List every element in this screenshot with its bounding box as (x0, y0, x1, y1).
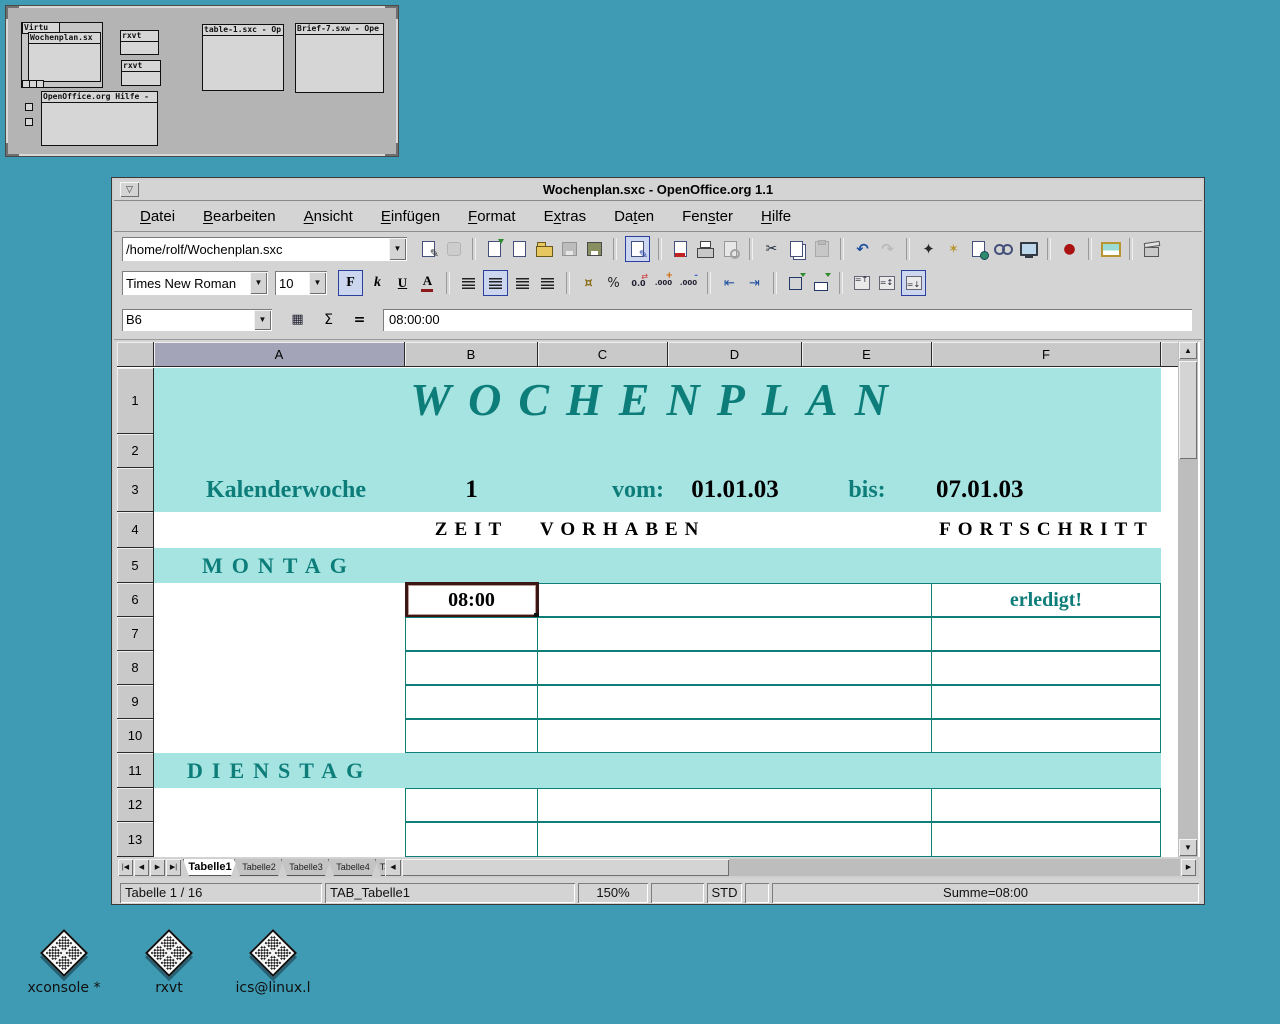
prev-sheet-icon[interactable]: ◀ (134, 859, 149, 876)
dienstag-band[interactable]: DIENSTAG (154, 753, 1161, 788)
kalenderwoche-label: Kalenderwoche (206, 468, 366, 512)
redo-icon[interactable] (876, 237, 899, 261)
row-header-4[interactable]: 4 (117, 512, 154, 548)
magic-wand-icon[interactable] (942, 237, 965, 261)
zeit-cell-row12[interactable] (405, 788, 538, 822)
cut-icon[interactable] (760, 237, 783, 261)
toolbar-separator (472, 238, 476, 260)
modified-flag[interactable] (745, 883, 769, 903)
row-header-9[interactable]: 9 (117, 685, 154, 719)
menu-einfgen[interactable]: Einfügen (367, 206, 454, 227)
copy-icon[interactable] (785, 237, 808, 261)
tab-scroll-left-icon[interactable]: ◀ (385, 859, 401, 876)
zoom-level[interactable]: 150% (578, 883, 648, 903)
status-bar: Tabelle 1 / 16TAB_Tabelle1150%STDSumme=0… (117, 880, 1199, 904)
selection-mode[interactable]: STD (707, 883, 742, 903)
edit-file-icon[interactable] (626, 237, 649, 261)
row-header-7[interactable]: 7 (117, 617, 154, 651)
toolbar-separator (839, 272, 843, 294)
menu-bearbeiten[interactable]: Bearbeiten (189, 206, 290, 227)
save-document-icon[interactable] (558, 237, 581, 261)
toolbar-separator (446, 272, 450, 294)
valign-center-icon[interactable] (875, 271, 898, 295)
fortschritt-cell-row8[interactable] (931, 651, 1161, 685)
column-header-c[interactable]: C (538, 342, 668, 367)
vorhaben-cell-row7[interactable] (537, 617, 932, 651)
cell-title-band[interactable]: WOCHENPLAN (154, 368, 1161, 434)
sheet-title: WOCHENPLAN (154, 368, 1161, 432)
insert-document-icon[interactable] (967, 237, 990, 261)
align-center-icon[interactable] (484, 271, 507, 295)
toolbar-separator (1088, 238, 1092, 260)
align-left-icon[interactable] (457, 271, 480, 295)
sum-icon[interactable] (317, 308, 340, 332)
gallery-icon[interactable] (1099, 237, 1122, 261)
fortschritt-cell-row6-value: erledigt! (932, 584, 1160, 616)
vorhaben-cell-row12[interactable] (537, 788, 932, 822)
sheet-tab-tabelle1[interactable]: Tabelle1 (183, 859, 237, 876)
vorhaben-cell-row13[interactable] (537, 822, 932, 857)
edit-url-icon[interactable] (417, 237, 440, 261)
desktop-icon-label: rxvt (114, 980, 224, 996)
bis-value: 07.01.03 (936, 468, 1024, 512)
fortschritt-cell-row13[interactable] (931, 822, 1161, 857)
pager-window-table1[interactable]: table-1.sxc - Op (202, 24, 284, 91)
justify-icon[interactable] (536, 271, 559, 295)
pager-window-title: rxvt (122, 61, 160, 72)
kalenderwoche-value: 1 (405, 468, 538, 512)
export-pdf-icon[interactable] (669, 237, 692, 261)
fortschritt-cell-row6[interactable]: erledigt! (931, 583, 1161, 617)
formula-input[interactable]: 08:00:00 (383, 309, 1192, 331)
function-autopilot-icon[interactable] (286, 308, 309, 332)
toolbar-separator (749, 238, 753, 260)
toolbar-separator (906, 238, 910, 260)
sheet-tab-tabelle4[interactable]: Tabelle4 (328, 859, 378, 876)
row-header-8[interactable]: 8 (117, 651, 154, 685)
first-sheet-icon[interactable]: |◀ (118, 859, 133, 876)
pager-window-title: Wochenplan.sx (29, 33, 100, 44)
bis-label: bis: (802, 468, 932, 512)
menu-ansicht[interactable]: Ansicht (290, 206, 367, 227)
pager-mini-icon[interactable] (25, 103, 33, 111)
pager-corner-handle (385, 6, 398, 19)
open-document-icon[interactable] (533, 237, 556, 261)
pager-window-title: table-1.sxc - Op (203, 25, 283, 36)
header-filler (1161, 342, 1178, 367)
window-menu-button[interactable]: ▽ (120, 182, 139, 197)
save-as-icon[interactable] (583, 237, 606, 261)
vertical-scrollbar[interactable]: ▲ ▼ (1178, 342, 1198, 857)
valign-top-icon[interactable] (850, 271, 873, 295)
menu-bar: DateiBearbeitenAnsichtEinfügenFormatExtr… (114, 201, 1202, 232)
menu-extras[interactable]: Extras (530, 206, 601, 227)
indent-less-icon[interactable] (718, 271, 741, 295)
url-combo[interactable]: /home/rolf/Wochenplan.sxc ▼ (122, 237, 407, 261)
sum-display[interactable]: Summe=08:00 (772, 883, 1199, 903)
vorhaben-cell-row6[interactable] (537, 583, 932, 617)
fortschritt-cell-row7[interactable] (931, 617, 1161, 651)
row-header-2[interactable]: 2 (117, 434, 154, 468)
chevron-down-icon[interactable]: ▼ (250, 272, 267, 294)
page-preview-icon[interactable] (719, 237, 742, 261)
zeit-cell-row13[interactable] (405, 822, 538, 857)
chevron-down-icon[interactable]: ▼ (389, 238, 406, 260)
row-header-12[interactable]: 12 (117, 788, 154, 822)
scroll-up-icon[interactable]: ▲ (1179, 342, 1197, 359)
cell-reference-value: B6 (122, 312, 253, 327)
menu-datei[interactable]: Datei (126, 206, 189, 227)
desktop-icon-xconsole[interactable]: xconsole * (9, 930, 119, 996)
pager-window-title: rxvt (121, 31, 158, 42)
print-icon[interactable] (694, 237, 717, 261)
vorhaben-cell-row10[interactable] (537, 719, 932, 753)
row-header-11[interactable]: 11 (117, 753, 154, 788)
align-right-icon[interactable] (511, 271, 534, 295)
cell-reference-box[interactable]: B6 ▼ (122, 309, 272, 331)
font-name-value: Times New Roman (122, 276, 249, 291)
virtual-desktop-pager[interactable]: Virtu Wochenplan.sx rxvt rxvt table-1.sx… (6, 6, 398, 156)
menu-hilfe[interactable]: Hilfe (747, 206, 805, 227)
iconified-window-icon (145, 929, 193, 977)
desktop-icon-rxvt[interactable]: rxvt (114, 930, 224, 996)
column-header-b[interactable]: B (405, 342, 538, 367)
calendar-week-band[interactable]: Kalenderwoche1vom:01.01.03bis:07.01.03 (154, 468, 1161, 512)
zeit-cell-row9[interactable] (405, 685, 538, 719)
cell-empty-band[interactable] (154, 434, 1161, 468)
horizontal-scrollbar[interactable] (402, 859, 1180, 876)
column-header-e[interactable]: E (802, 342, 932, 367)
sheet-tab-bar: |◀ ◀ ▶ ▶| Tabelle1Tabelle2Tabelle3Tabell… (117, 858, 1199, 878)
vertical-scroll-thumb[interactable] (1179, 361, 1197, 459)
row-header-5[interactable]: 5 (117, 548, 154, 583)
vorhaben-header: VORHABEN (540, 512, 705, 548)
zeit-cell-row8[interactable] (405, 651, 538, 685)
spreadsheet-grid: ABCDEF 12345678910111213 WOCHENPLANKalen… (117, 342, 1200, 857)
pager-window-title: OpenOffice.org Hilfe - (42, 92, 157, 103)
fortschritt-cell-row12[interactable] (931, 788, 1161, 822)
zeit-header: ZEIT (405, 512, 538, 548)
row-header-10[interactable]: 10 (117, 719, 154, 753)
column-titles-row[interactable]: ZEITVORHABENFORTSCHRITT (154, 512, 1161, 548)
object-toolbar: Times New Roman ▼ 10 ▼ (114, 266, 1202, 301)
pager-corner-handle (6, 6, 19, 19)
indent-more-icon[interactable] (743, 271, 766, 295)
row-header-3[interactable]: 3 (117, 468, 154, 512)
stop-loading-icon[interactable] (442, 237, 465, 261)
pager-mini-icon[interactable] (36, 80, 44, 88)
toolbar-separator (1129, 238, 1133, 260)
vorhaben-cell-row8[interactable] (537, 651, 932, 685)
cell-cursor[interactable] (405, 582, 539, 618)
url-value: /home/rolf/Wochenplan.sxc (122, 242, 388, 257)
font-size-combo[interactable]: 10 ▼ (275, 271, 327, 295)
row-header-1[interactable]: 1 (117, 368, 154, 434)
montag-label: MONTAG (202, 548, 356, 583)
show-draw-icon[interactable] (1017, 237, 1040, 261)
function-toolbar: /home/rolf/Wochenplan.sxc ▼ (114, 232, 1202, 267)
horizontal-scroll-thumb[interactable] (402, 859, 729, 876)
bold-icon[interactable] (339, 271, 362, 295)
stamp-box-icon[interactable] (1140, 237, 1163, 261)
chevron-down-icon[interactable]: ▼ (309, 272, 326, 294)
toolbar-separator (658, 238, 662, 260)
hyperlink-icon[interactable] (992, 237, 1015, 261)
row-header-6[interactable]: 6 (117, 583, 154, 617)
toolbar-separator (840, 238, 844, 260)
menu-daten[interactable]: Daten (600, 206, 668, 227)
vom-label: vom: (538, 468, 664, 512)
underline-icon[interactable] (391, 271, 414, 295)
template-name[interactable]: TAB_Tabelle1 (325, 883, 575, 903)
openoffice-window: ▽ Wochenplan.sxc - OpenOffice.org 1.1 Da… (112, 178, 1204, 904)
scroll-right-icon[interactable]: ▶ (1181, 859, 1196, 876)
add-decimal-icon[interactable] (652, 271, 675, 295)
valign-bottom-icon[interactable] (902, 271, 925, 295)
pager-window-hilfe[interactable]: OpenOffice.org Hilfe - (41, 91, 158, 146)
navigator-icon[interactable] (917, 237, 940, 261)
italic-icon[interactable] (366, 271, 389, 295)
format-standard-icon[interactable] (627, 271, 650, 295)
desktop-icon-label: ics@linux.l (218, 980, 328, 996)
chevron-down-icon[interactable]: ▼ (254, 310, 271, 330)
pager-mini-icon[interactable] (25, 118, 33, 126)
blank-document-icon[interactable] (508, 237, 531, 261)
undo-icon[interactable] (851, 237, 874, 261)
toolbar-separator (773, 272, 777, 294)
row-header-13[interactable]: 13 (117, 822, 154, 857)
montag-band[interactable]: MONTAG (154, 548, 1161, 583)
fortschritt-cell-row10[interactable] (931, 719, 1161, 753)
toolbar-separator (613, 238, 617, 260)
column-header-a[interactable]: A (154, 342, 405, 367)
select-all-corner[interactable] (117, 342, 154, 367)
menu-format[interactable]: Format (454, 206, 530, 227)
pager-corner-handle (6, 143, 19, 156)
pager-window-wochenplan[interactable]: Wochenplan.sx (28, 32, 101, 82)
column-header-f[interactable]: F (932, 342, 1161, 367)
title-bar[interactable]: ▽ Wochenplan.sxc - OpenOffice.org 1.1 (114, 180, 1202, 201)
vom-value: 01.01.03 (668, 468, 802, 512)
background-color-icon[interactable] (809, 271, 832, 295)
currency-icon[interactable] (577, 271, 600, 295)
formula-bar: B6 ▼ 08:00:00 (114, 300, 1202, 340)
font-color-icon[interactable] (416, 271, 439, 295)
fortschritt-cell-row9[interactable] (931, 685, 1161, 719)
pager-window-rxvt[interactable]: rxvt (121, 60, 161, 86)
iconified-window-icon (249, 929, 297, 977)
pager-window-title: Brief-7.sxw - Ope (296, 24, 383, 35)
font-name-combo[interactable]: Times New Roman ▼ (122, 271, 268, 295)
sheet-tab-tabelle3[interactable]: Tabelle3 (281, 859, 331, 876)
next-sheet-icon[interactable]: ▶ (150, 859, 165, 876)
toolbar-separator (566, 272, 570, 294)
window-title: Wochenplan.sxc - OpenOffice.org 1.1 (114, 180, 1202, 199)
function-icon[interactable] (348, 308, 371, 332)
record-changes-icon[interactable] (1058, 237, 1081, 261)
delete-decimal-icon[interactable] (677, 271, 700, 295)
sheet-tab-tabelle2[interactable]: Tabelle2 (234, 859, 284, 876)
new-document-icon[interactable] (483, 237, 506, 261)
borders-icon[interactable] (784, 271, 807, 295)
toolbar-separator (707, 272, 711, 294)
menu-fenster[interactable]: Fenster (668, 206, 747, 227)
cells-area[interactable]: WOCHENPLANKalenderwoche1vom:01.01.03bis:… (154, 368, 1161, 857)
pager-window-rxvt[interactable]: rxvt (120, 30, 159, 55)
desktop-icon-icslinuxl[interactable]: ics@linux.l (218, 930, 328, 996)
toolbar-separator (1047, 238, 1051, 260)
zeit-cell-row7[interactable] (405, 617, 538, 651)
percent-icon[interactable] (602, 271, 625, 295)
pager-window-brief7[interactable]: Brief-7.sxw - Ope (295, 23, 384, 93)
column-header-d[interactable]: D (668, 342, 802, 367)
vorhaben-cell-row9[interactable] (537, 685, 932, 719)
paste-icon[interactable] (810, 237, 833, 261)
insert-mode[interactable] (651, 883, 704, 903)
desktop-icon-label: xconsole * (9, 980, 119, 996)
last-sheet-icon[interactable]: ▶| (166, 859, 181, 876)
sheet-position[interactable]: Tabelle 1 / 16 (120, 883, 322, 903)
zeit-cell-row10[interactable] (405, 719, 538, 753)
iconified-window-icon (40, 929, 88, 977)
dienstag-label: DIENSTAG (187, 753, 372, 788)
font-size-value: 10 (275, 276, 308, 291)
fortschritt-header: FORTSCHRITT (932, 512, 1161, 548)
scroll-down-icon[interactable]: ▼ (1179, 839, 1197, 856)
pager-corner-handle (385, 143, 398, 156)
